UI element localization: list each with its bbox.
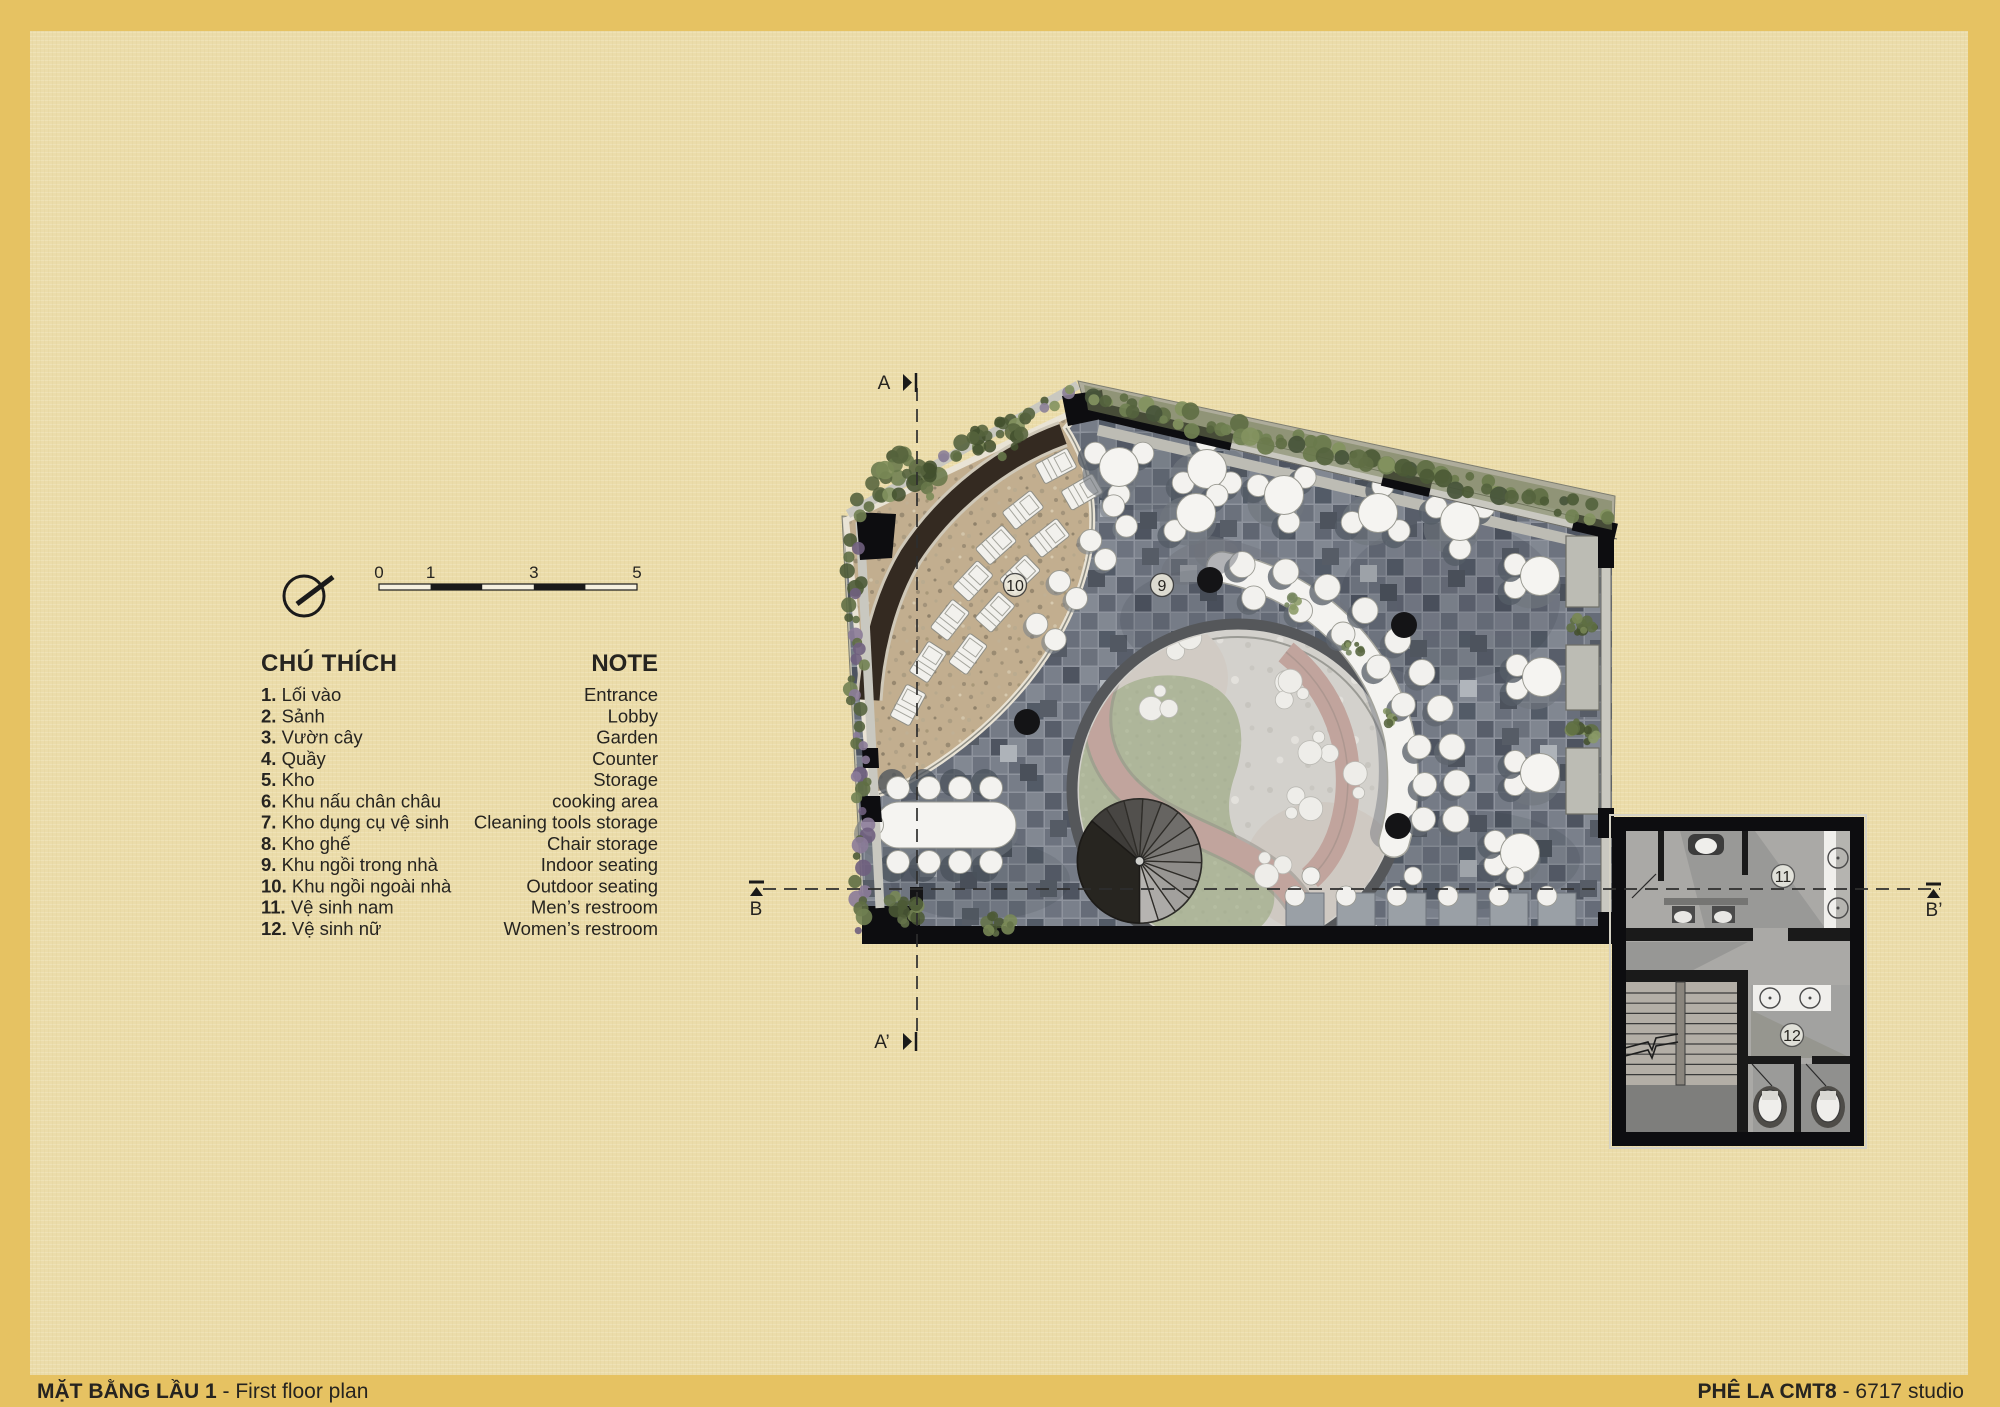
svg-text:Indoor seating: Indoor seating [541, 854, 658, 875]
svg-text:Women’s restroom: Women’s restroom [503, 918, 658, 939]
svg-text:MẶT BẰNG LẦU 1 - First floor p: MẶT BẰNG LẦU 1 - First floor plan [37, 1379, 368, 1403]
svg-text:Cleaning tools storage: Cleaning tools storage [474, 812, 658, 833]
svg-text:7. Kho dụng cụ vệ sinh: 7. Kho dụng cụ vệ sinh [261, 812, 449, 833]
svg-text:Counter: Counter [592, 748, 658, 769]
svg-text:2. Sảnh: 2. Sảnh [261, 705, 325, 726]
svg-text:10. Khu ngồi ngoài nhà: 10. Khu ngồi ngoài nhà [261, 875, 452, 896]
svg-text:Outdoor seating: Outdoor seating [526, 875, 658, 896]
svg-text:cooking area: cooking area [552, 790, 659, 811]
svg-text:11. Vệ sinh nam: 11. Vệ sinh nam [261, 897, 394, 918]
svg-text:CHÚ THÍCH: CHÚ THÍCH [261, 649, 398, 677]
svg-text:Storage: Storage [593, 769, 658, 790]
svg-text:B’: B’ [1926, 900, 1943, 921]
svg-text:Chair storage: Chair storage [547, 833, 658, 854]
svg-text:5. Kho: 5. Kho [261, 769, 315, 790]
svg-text:8. Kho ghế: 8. Kho ghế [261, 833, 351, 854]
svg-text:6. Khu nấu chân châu: 6. Khu nấu chân châu [261, 790, 441, 811]
svg-text:0: 0 [374, 563, 383, 582]
svg-text:3. Vườn cây: 3. Vườn cây [261, 727, 363, 748]
svg-text:9. Khu ngồi trong nhà: 9. Khu ngồi trong nhà [261, 854, 439, 875]
svg-text:3: 3 [529, 563, 538, 582]
svg-text:5: 5 [632, 563, 641, 582]
svg-text:11: 11 [1775, 869, 1792, 886]
svg-text:4. Quầy: 4. Quầy [261, 748, 327, 769]
svg-text:PHÊ LA CMT8 - 6717 studio: PHÊ LA CMT8 - 6717 studio [1698, 1379, 1965, 1403]
svg-text:9: 9 [1158, 578, 1167, 595]
svg-text:A: A [878, 373, 891, 394]
svg-text:1: 1 [426, 563, 435, 582]
svg-text:A’: A’ [874, 1032, 889, 1053]
svg-text:Men’s restroom: Men’s restroom [531, 897, 658, 918]
svg-text:12. Vệ sinh nữ: 12. Vệ sinh nữ [261, 918, 381, 939]
svg-text:B: B [750, 899, 763, 920]
svg-text:NOTE: NOTE [591, 650, 658, 677]
svg-text:12: 12 [1783, 1028, 1801, 1045]
svg-text:Garden: Garden [596, 727, 658, 748]
svg-text:Entrance: Entrance [584, 684, 658, 705]
svg-text:10: 10 [1006, 578, 1024, 595]
svg-text:Lobby: Lobby [608, 705, 659, 726]
svg-text:1. Lối vào: 1. Lối vào [261, 684, 341, 705]
